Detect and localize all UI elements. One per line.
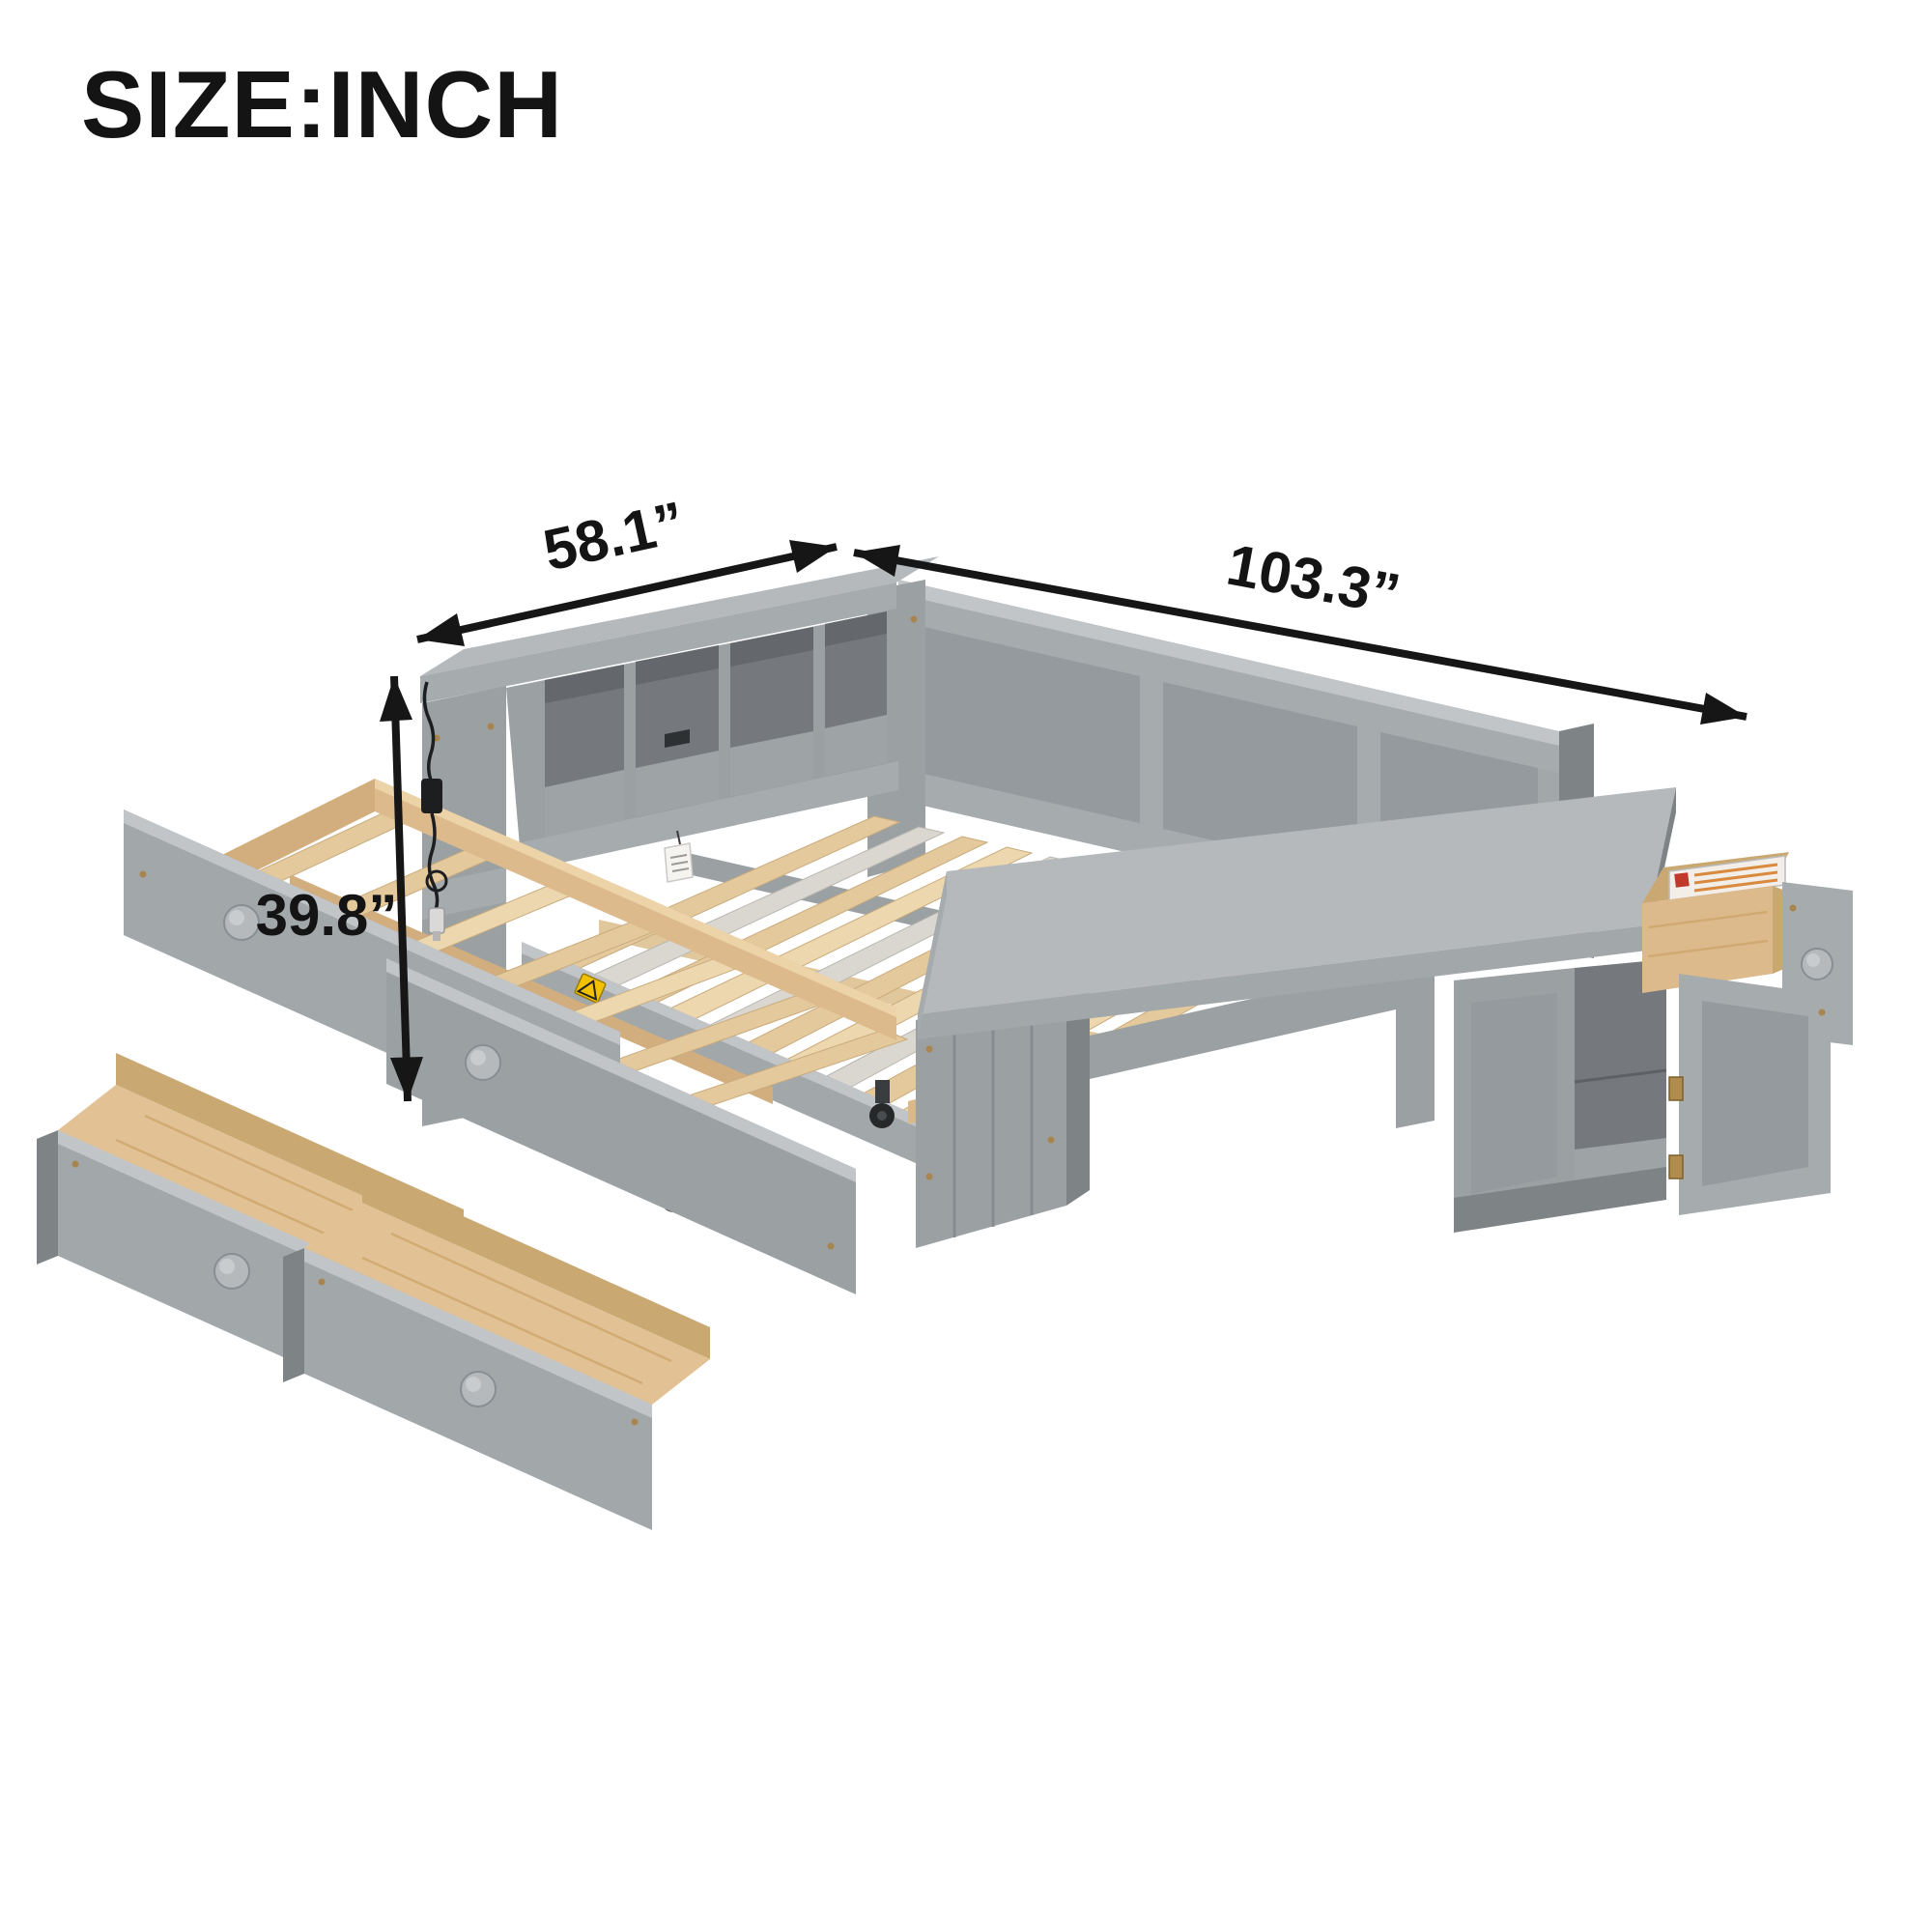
storage-drawer-right: [283, 1171, 710, 1530]
dimension-height-label: 39.8”: [256, 883, 398, 948]
dimension-length-label: 103.3”: [1222, 532, 1405, 627]
desk-cabinet: [1454, 959, 1666, 1233]
arrowhead-icon: [1700, 693, 1747, 724]
cable-plug: [429, 908, 444, 933]
cable-switch: [421, 779, 442, 813]
product-dimension-diagram: 58.1” 103.3” 39.8” SIZE:INCH: [0, 0, 1932, 1932]
screw: [911, 616, 918, 623]
bed-leg: [1396, 961, 1435, 1128]
arrowhead-icon: [380, 676, 412, 722]
size-unit-title: SIZE:INCH: [81, 51, 563, 157]
desk: [916, 787, 1853, 1248]
diagram-canvas: 58.1” 103.3” 39.8” SIZE:INCH: [0, 0, 1932, 1932]
screw: [488, 724, 495, 730]
desk-cabinet-door-open: [1669, 974, 1831, 1215]
dimension-width-label: 58.1”: [538, 489, 691, 582]
door-hinge: [1669, 1077, 1683, 1100]
door-hinge: [1669, 1155, 1683, 1179]
